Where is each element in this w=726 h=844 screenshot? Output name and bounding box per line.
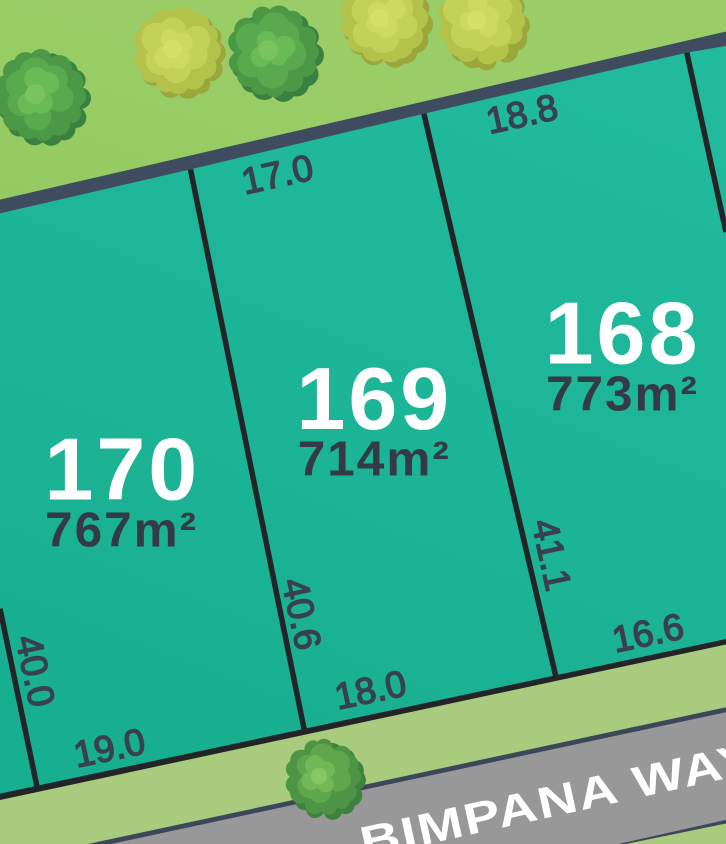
svg-text:714m²: 714m² bbox=[298, 432, 451, 487]
svg-text:773m²: 773m² bbox=[546, 367, 699, 422]
svg-text:767m²: 767m² bbox=[45, 503, 198, 558]
